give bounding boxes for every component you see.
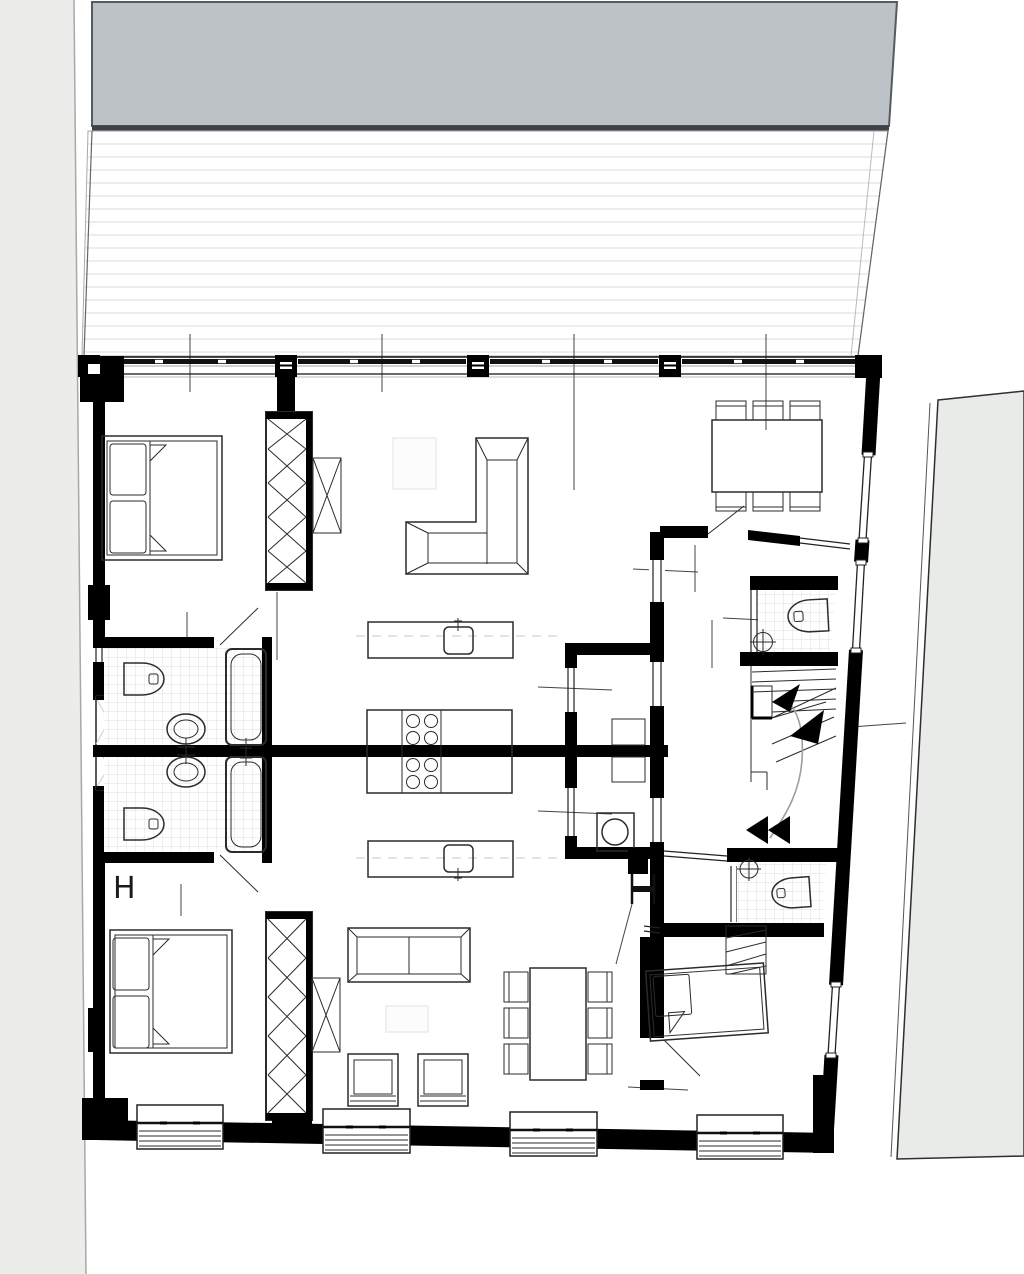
- rug-upper: [393, 438, 436, 489]
- double-bed-lower: [110, 930, 232, 1053]
- side-cabinet-lower: [312, 978, 340, 1052]
- arrow-up-icon: [772, 684, 800, 712]
- east-window-2: [851, 560, 866, 653]
- terrace-decking: [82, 131, 888, 356]
- french-window-4: [697, 1115, 783, 1159]
- french-window-3: [510, 1112, 597, 1156]
- cooktop-upper: [407, 715, 438, 745]
- north-window-band: [78, 355, 882, 378]
- floor-plan-drawing: H: [0, 0, 1024, 1274]
- staircase: [746, 666, 836, 844]
- floor-plan-page: H: [0, 0, 1024, 1274]
- french-window-2: [323, 1109, 410, 1153]
- hall-wall: [649, 532, 700, 1090]
- single-bed: [646, 963, 769, 1041]
- armchair-2: [418, 1054, 468, 1106]
- cooktop-lower: [407, 759, 438, 789]
- arrow-left-icon-2: [768, 816, 790, 844]
- utility-lower: [597, 757, 645, 851]
- french-window-1: [137, 1105, 223, 1149]
- dining-chairs-lower: [504, 972, 612, 1074]
- washing-machine: [597, 813, 634, 851]
- armchair-1: [348, 1054, 398, 1106]
- kitchen-island-upper: [368, 618, 513, 658]
- kitchen-island-lower: [368, 841, 513, 881]
- entry-walls: [660, 506, 850, 549]
- east-window-1: [858, 452, 873, 543]
- walk-line: [770, 698, 802, 838]
- wardrobe-lower: [266, 912, 312, 1132]
- side-cabinet-upper: [313, 458, 341, 533]
- arrow-left-icon-1: [746, 816, 768, 844]
- utility-upper: [612, 719, 645, 745]
- small-bedroom: [646, 926, 769, 1041]
- east-window-3: [826, 982, 841, 1058]
- rug-lower: [386, 1006, 428, 1032]
- adjacent-roof: [92, 2, 897, 126]
- wardrobe-upper: [266, 374, 312, 590]
- dining-lower: [504, 968, 612, 1080]
- arrow-down-icon: [790, 710, 824, 744]
- straight-sofa: [348, 928, 470, 982]
- section-marker-left: H: [113, 871, 136, 906]
- dining-upper: [712, 401, 822, 511]
- double-bed-upper: [102, 436, 222, 560]
- south-wall: [95, 1105, 833, 1159]
- plan-markers: H: [113, 848, 654, 964]
- right-parcel: [897, 391, 1024, 1159]
- left-parcel: [0, 0, 86, 1274]
- grid-marks: [181, 334, 906, 1090]
- direction-arrows: [746, 684, 824, 844]
- stair-treads: [751, 669, 836, 790]
- dining-chairs-upper: [716, 401, 820, 511]
